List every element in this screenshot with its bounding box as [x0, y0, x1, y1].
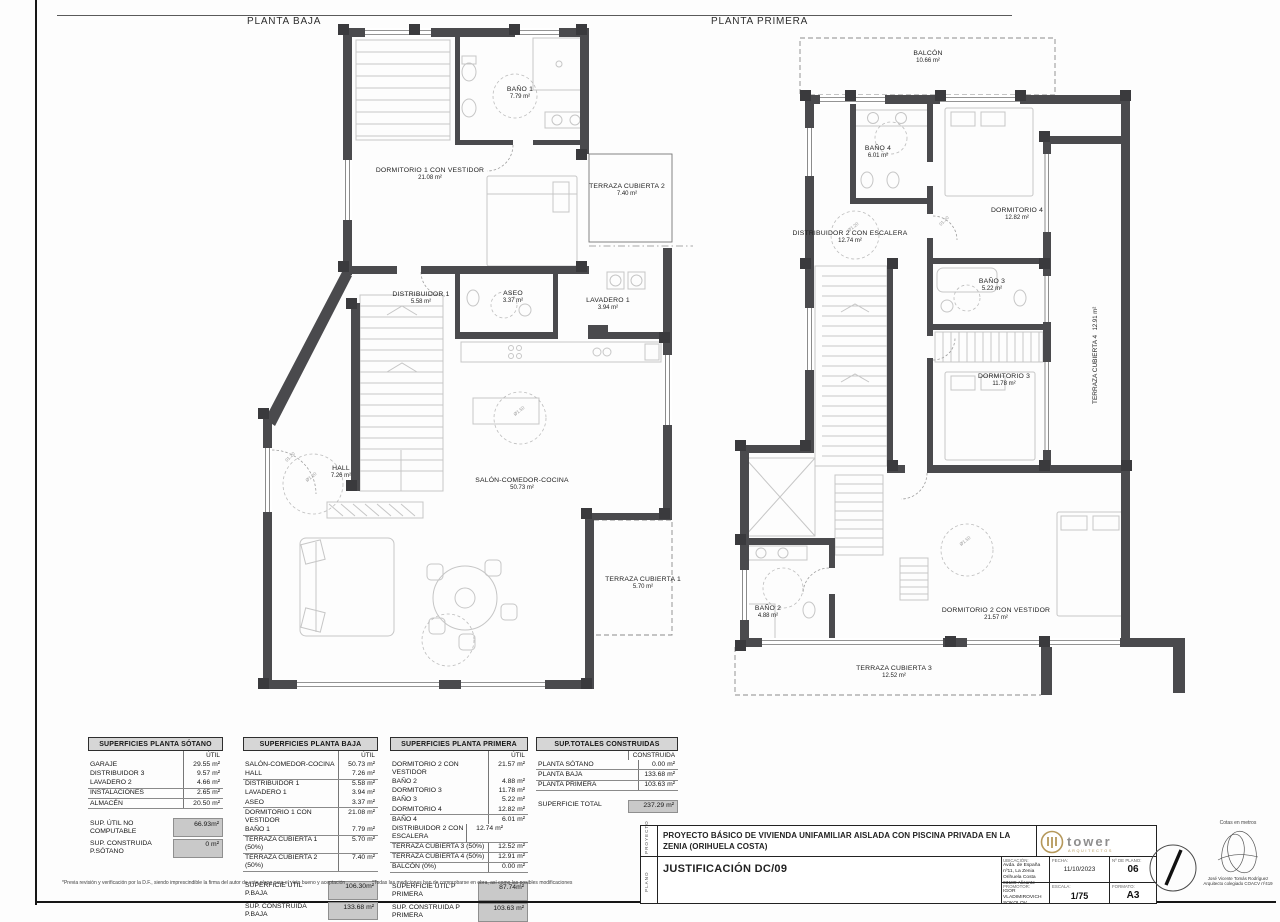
title-block: PROYECTO PLANO PROYECTO BÁSICO DE VIVIEN…: [640, 825, 1157, 904]
architect-name: José Vicente Tomás Rodríguez Arquitecto …: [1196, 876, 1280, 887]
table-row: DORMITORIO 1 CON VESTIDOR21.08 m²: [243, 808, 378, 825]
table-row: TERRAZA CUBIERTA 3 (50%)12.52 m²: [390, 843, 528, 853]
ubicacion-cell: UBICACIÓN: Avda. de España nº11, La Zeni…: [1003, 858, 1048, 887]
table-row: DISTRIBUIDOR 15.58 m²: [243, 780, 378, 789]
table-row: DISTRIBUIDOR 2 CON ESCALERA12.74 m²: [390, 824, 528, 842]
table-total-row: SUP. ÚTIL NO COMPUTABLE66.93m²: [88, 818, 223, 837]
room-label: BAÑO 35.22 m²: [979, 278, 1005, 292]
table-total-row: SUP. CONSTRUIDA P PRIMERA103.63 m²: [390, 903, 528, 922]
room-label: DORMITORIO 1 CON VESTIDOR21.08 m²: [376, 167, 484, 181]
room-label: HALL7.26 m²: [331, 465, 351, 479]
north-arrow-icon: [1146, 841, 1200, 895]
plano-strip-label: PLANO: [644, 864, 649, 900]
table-totales-construidas: SUP.TOTALES CONSTRUIDAS CONSTRUIDA PLANT…: [536, 737, 678, 813]
table-row: BAÑO 17.79 m²: [243, 825, 378, 835]
room-label: TERRAZA CUBIERTA 15.70 m²: [605, 576, 681, 590]
project-title: PROYECTO BÁSICO DE VIVIENDA UNIFAMILIAR …: [663, 831, 1028, 852]
room-label: BAÑO 17.79 m²: [507, 86, 533, 100]
plan-sheet: { "plans": { "baja": { "title": "PLANTA …: [0, 0, 1280, 905]
table-row: LAVADERO 24.66 m²: [88, 779, 223, 789]
table-row: SALÓN-COMEDOR-COCINA50.73 m²: [243, 760, 378, 769]
table-col-header: ÚTIL: [88, 751, 223, 760]
plano-title: JUSTIFICACIÓN DC/09: [663, 863, 787, 875]
tower-logo: tower ARQUITECTOS: [1039, 829, 1154, 855]
primera-annotations: Ø1.50 Ø1.20 01.20: [735, 38, 1055, 695]
room-label: SALÓN-COMEDOR-COCINA50.73 m²: [475, 477, 569, 491]
table-header: SUP.TOTALES CONSTRUIDAS: [536, 737, 678, 751]
table-row: HALL7.26 m²: [243, 769, 378, 779]
table-superficies-baja: SUPERFICIES PLANTA BAJA ÚTIL SALÓN-COMED…: [243, 737, 378, 920]
table-row: BALCÓN (0%)0.00 m²: [390, 863, 528, 873]
signature-icon: [1206, 828, 1270, 876]
planta-baja: Ø1.50 Ø1.20 01.20: [215, 10, 705, 725]
table-row: DORMITORIO 2 CON VESTIDOR21.57 m²: [390, 760, 528, 777]
primera-pillars: [735, 90, 1132, 651]
table-row: DORMITORIO 412.82 m²: [390, 805, 528, 815]
table-row: PLANTA PRIMERA103.63 m²: [536, 781, 678, 791]
table-header: SUPERFICIES PLANTA SÓTANO: [88, 737, 223, 751]
room-label: DISTRIBUIDOR 2 CON ESCALERA12.74 m²: [793, 230, 908, 244]
room-label: LAVADERO 13.94 m²: [586, 297, 630, 311]
table-row: DORMITORIO 311.78 m²: [390, 787, 528, 796]
table-col-header: ÚTIL: [243, 751, 378, 760]
promotor-cell: PROMOTOR: IGOR VLADIMIROVICH SOKOLOV: [1003, 884, 1048, 907]
table-row: TERRAZA CUBIERTA 1 (50%)5.70 m²: [243, 836, 378, 854]
planta-primera: Ø1.50 Ø1.20 01.20: [705, 10, 1195, 725]
table-row: INSTALACIONES2.65 m²: [88, 789, 223, 799]
svg-text:Ø1.20: Ø1.20: [305, 471, 318, 483]
table-row: ALMACÉN20.50 m²: [88, 799, 223, 809]
room-label: DORMITORIO 311.78 m²: [978, 373, 1030, 387]
room-label: DORMITORIO 412.82 m²: [991, 207, 1043, 221]
svg-text:Ø1.50: Ø1.50: [513, 405, 526, 417]
table-row: PLANTA BAJA133.68 m²: [536, 770, 678, 780]
room-label: DORMITORIO 2 CON VESTIDOR21.57 m²: [942, 607, 1050, 621]
table-total-row: SUP. CONSTRUIDA P.BAJA133.68 m²: [243, 902, 378, 921]
room-label: TERRAZA CUBIERTA 312.52 m²: [856, 665, 932, 679]
table-header: SUPERFICIES PLANTA PRIMERA: [390, 737, 528, 751]
proyecto-strip-label: PROYECTO: [644, 828, 649, 854]
table-superficies-sotano: SUPERFICIES PLANTA SÓTANO ÚTIL GARAJE29.…: [88, 737, 223, 858]
table-row: GARAJE29.55 m²: [88, 760, 223, 769]
svg-text:01.20: 01.20: [938, 215, 950, 227]
svg-text:ARQUITECTOS: ARQUITECTOS: [1068, 849, 1113, 853]
table-row: LAVADERO 13.94 m²: [243, 789, 378, 798]
footnote-right: *Todas las mediciones han de comprobarse…: [372, 880, 572, 886]
escala-cell: ESCALA: 1/75: [1052, 884, 1107, 901]
table-col-header: CONSTRUIDA: [536, 751, 678, 760]
svg-text:tower: tower: [1067, 834, 1112, 849]
table-row: ASEO3.37 m²: [243, 798, 378, 808]
table-total-row: SUPERFICIE TOTAL237.29 m²: [536, 800, 678, 813]
table-row: DISTRIBUIDOR 39.57 m²: [88, 769, 223, 778]
cotas-note: Cotas en metros: [1198, 820, 1278, 826]
planta-baja-drawing: Ø1.50 Ø1.20 01.20: [215, 10, 705, 725]
fecha-cell: FECHA: 11/10/2023: [1052, 858, 1107, 873]
room-label: ASEO3.37 m²: [503, 290, 523, 304]
table-header: SUPERFICIES PLANTA BAJA: [243, 737, 378, 751]
page-frame-left: [35, 0, 37, 905]
room-label-vertical: TERRAZA CUBIERTA 4 12.91 m²: [1087, 290, 1105, 420]
table-row: BAÑO 35.22 m²: [390, 796, 528, 805]
table-row: BAÑO 46.01 m²: [390, 815, 528, 824]
footnote-left: *Previa revisión y verificación por la D…: [62, 880, 345, 886]
table-col-header: ÚTIL: [390, 751, 528, 760]
table-row: TERRAZA CUBIERTA 2 (50%)7.40 m²: [243, 854, 378, 872]
table-total-row: SUP. CONSTRUIDA P.SÓTANO0 m²: [88, 839, 223, 858]
room-label: BALCÓN10.66 m²: [913, 50, 942, 64]
svg-text:Ø1.50: Ø1.50: [959, 535, 972, 547]
table-row: PLANTA SÓTANO0.00 m²: [536, 760, 678, 770]
table-superficies-primera: SUPERFICIES PLANTA PRIMERA ÚTIL DORMITOR…: [390, 737, 528, 922]
table-row: BAÑO 24.88 m²: [390, 777, 528, 786]
room-label: BAÑO 46.01 m²: [865, 145, 891, 159]
room-label: DISTRIBUIDOR 15.58 m²: [392, 291, 449, 305]
table-row: TERRAZA CUBIERTA 4 (50%)12.91 m²: [390, 853, 528, 863]
primera-walls: [740, 95, 1185, 695]
room-label: TERRAZA CUBIERTA 27.40 m²: [589, 183, 665, 197]
room-label: BAÑO 24.88 m²: [755, 605, 781, 619]
